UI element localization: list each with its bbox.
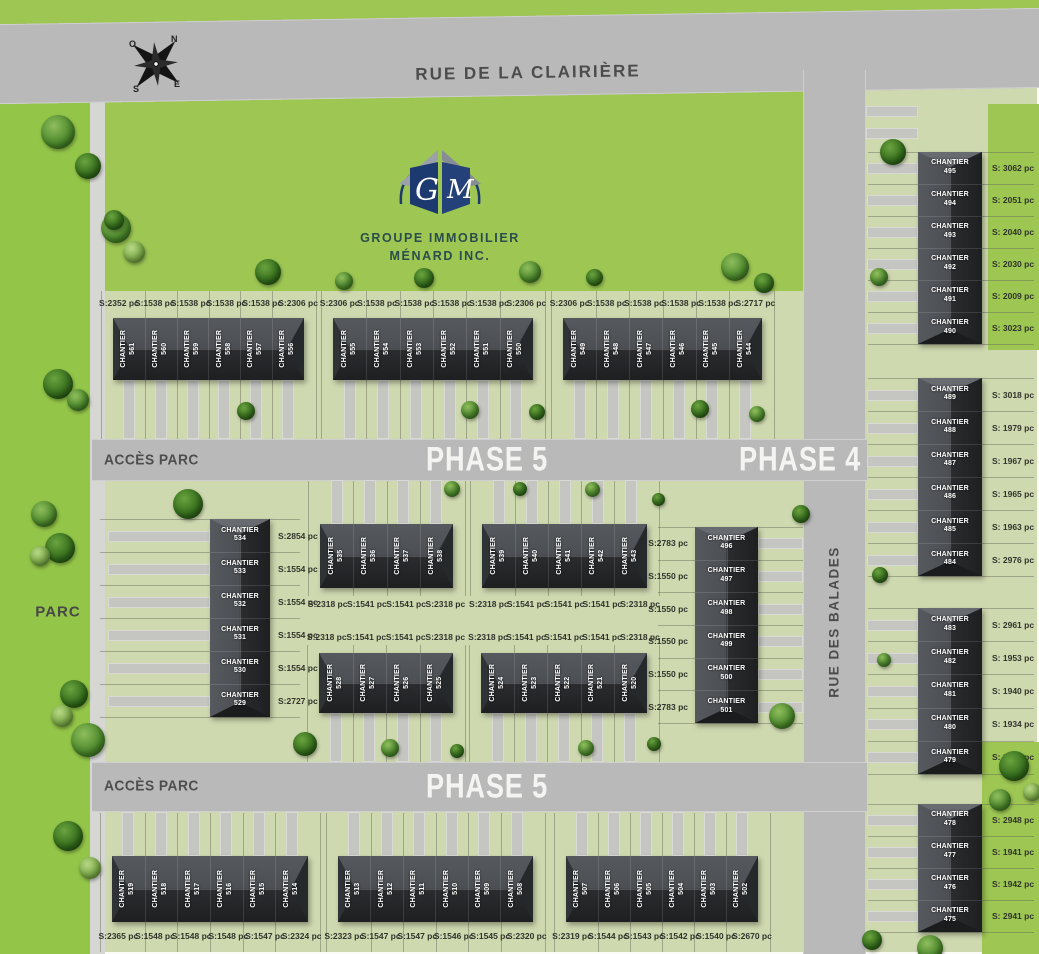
driveway (867, 423, 918, 434)
lot-line (868, 576, 1034, 577)
driveway (867, 291, 918, 302)
lot-label: CHANTIER511 (410, 870, 428, 908)
lot-544: CHANTIER544 (729, 318, 762, 380)
lot-area-label: S:1550 pc (648, 571, 688, 581)
lot-area-label: S:1543 pc (624, 931, 664, 941)
lot-label: CHANTIER549 (571, 330, 589, 368)
lot-label: CHANTIER497 (695, 567, 758, 585)
lot-area-label: S:1548 pc (172, 931, 212, 941)
lot-label: CHANTIER538 (428, 537, 446, 575)
park-label: PARC (35, 604, 80, 621)
lot-label: CHANTIER477 (918, 843, 982, 861)
driveway (510, 380, 522, 439)
lot-540: CHANTIER540 (515, 524, 549, 588)
lot-495: CHANTIER495 (918, 152, 982, 185)
driveway (413, 812, 425, 856)
lot-area-label: S:2318 pc (468, 632, 508, 642)
lot-area-label: S:2783 pc (648, 702, 688, 712)
lot-area-label: S: 3018 pc (992, 390, 1034, 400)
driveway (640, 380, 652, 439)
tree-icon (237, 402, 255, 420)
tree-icon (769, 703, 795, 729)
lot-526: CHANTIER526 (386, 653, 421, 713)
lot-line (465, 645, 466, 762)
driveway (331, 480, 343, 524)
lot-label: CHANTIER507 (573, 870, 591, 908)
driveway (108, 597, 210, 608)
lot-area-label: S:1548 pc (208, 931, 248, 941)
lot-area-label: S:2318 pc (307, 632, 347, 642)
tree-icon (381, 739, 399, 757)
lot-label: CHANTIER540 (523, 537, 541, 575)
driveway (282, 380, 294, 439)
lot-label: CHANTIER554 (374, 330, 392, 368)
lot-527: CHANTIER527 (353, 653, 388, 713)
lot-494: CHANTIER494 (918, 184, 982, 217)
lot-label: CHANTIER531 (210, 626, 270, 644)
lot-536: CHANTIER536 (353, 524, 387, 588)
driveway (381, 812, 393, 856)
lot-label: CHANTIER514 (283, 870, 301, 908)
driveway (364, 480, 376, 524)
lot-482: CHANTIER482 (918, 641, 982, 675)
lot-area-label: S:1541 pc (582, 632, 622, 642)
lot-area-label: S: 1979 pc (992, 423, 1034, 433)
driveway (758, 604, 803, 615)
lot-label: CHANTIER484 (918, 551, 982, 569)
lot-label: CHANTIER476 (918, 875, 982, 893)
lot-542: CHANTIER542 (581, 524, 615, 588)
lot-line (100, 651, 300, 652)
lot-area-label: S:1540 pc (696, 931, 736, 941)
lot-area-label: S:1550 pc (648, 669, 688, 679)
lot-label: CHANTIER517 (185, 870, 203, 908)
lot-area-label: S:1541 pc (347, 599, 387, 609)
lot-area-label: S: 2009 pc (992, 291, 1034, 301)
driveway (867, 456, 918, 467)
driveway (220, 812, 232, 856)
driveway (397, 480, 409, 524)
lot-553: CHANTIER553 (400, 318, 434, 380)
lot-area-label: S:1542 pc (660, 931, 700, 941)
lot-area-label: S: 2040 pc (992, 227, 1034, 237)
lot-528: CHANTIER528 (319, 653, 354, 713)
lot-label: CHANTIER527 (361, 664, 379, 702)
lot-560: CHANTIER560 (145, 318, 178, 380)
lot-area-label: S:1538 pc (587, 298, 627, 308)
driveway (736, 812, 748, 856)
tree-icon (585, 482, 600, 497)
lot-489: CHANTIER489 (918, 378, 982, 412)
tree-icon (71, 723, 105, 757)
tree-icon (586, 269, 603, 286)
lot-label: CHANTIER539 (490, 537, 508, 575)
driveway (108, 564, 210, 575)
lot-484: CHANTIER484 (918, 543, 982, 576)
lot-524: CHANTIER524 (481, 653, 515, 713)
lot-label: CHANTIER550 (508, 330, 526, 368)
phase5-label-top: PHASE 5 (426, 441, 548, 480)
driveway (444, 380, 456, 439)
lot-area-label: S:1538 pc (135, 298, 175, 308)
tree-icon (335, 272, 353, 290)
lot-516: CHANTIER516 (210, 856, 244, 922)
building-mid-lower-left: CHANTIER528CHANTIER527CHANTIER526CHANTIE… (319, 653, 453, 713)
lot-502: CHANTIER502 (726, 856, 758, 922)
lot-label: CHANTIER475 (918, 907, 982, 925)
lot-label: CHANTIER535 (328, 537, 346, 575)
lot-area-label: S:1538 pc (469, 298, 509, 308)
driveway (866, 106, 918, 117)
lot-517: CHANTIER517 (177, 856, 211, 922)
lot-label: CHANTIER542 (589, 537, 607, 575)
lot-area-label: S:2717 pc (736, 298, 776, 308)
lot-485: CHANTIER485 (918, 510, 982, 544)
lot-487: CHANTIER487 (918, 444, 982, 478)
lot-label: CHANTIER528 (327, 664, 345, 702)
lot-area-label: S: 1967 pc (992, 456, 1034, 466)
lot-551: CHANTIER551 (466, 318, 500, 380)
driveway (430, 713, 442, 762)
lot-550: CHANTIER550 (500, 318, 533, 380)
driveway (526, 480, 538, 524)
lot-line (469, 645, 470, 762)
lot-label: CHANTIER483 (918, 616, 982, 634)
lot-label: CHANTIER516 (218, 870, 236, 908)
lot-label: CHANTIER498 (695, 600, 758, 618)
lot-area-label: S:2352 pc (99, 298, 139, 308)
lot-523: CHANTIER523 (514, 653, 548, 713)
lot-area-label: S:1538 pc (242, 298, 282, 308)
lot-label: CHANTIER492 (918, 255, 982, 273)
lot-label: CHANTIER478 (918, 811, 982, 829)
building-north-2: CHANTIER555CHANTIER554CHANTIER553CHANTIE… (333, 318, 533, 380)
driveway (108, 630, 210, 641)
lot-label: CHANTIER518 (152, 870, 170, 908)
street-label-balades: RUE DES BALADES (827, 546, 842, 698)
driveway (187, 380, 199, 439)
lot-535: CHANTIER535 (320, 524, 354, 588)
lot-area-label: S:1538 pc (357, 298, 397, 308)
lot-547: CHANTIER547 (629, 318, 663, 380)
driveway (108, 663, 210, 674)
lot-label: CHANTIER533 (210, 560, 270, 578)
lot-area-label: S:2306 pc (278, 298, 318, 308)
driveway (867, 522, 918, 533)
lot-label: CHANTIER501 (695, 698, 758, 716)
acces-parc-label-top: ACCÈS PARC (104, 452, 199, 469)
company-logo: G M (397, 148, 483, 222)
lot-508: CHANTIER508 (501, 856, 533, 922)
lot-label: CHANTIER544 (737, 330, 755, 368)
driveway (286, 812, 298, 856)
driveway (640, 812, 652, 856)
lot-503: CHANTIER503 (694, 856, 727, 922)
lot-area-label: S:1550 pc (648, 636, 688, 646)
driveway (123, 380, 135, 439)
lot-label: CHANTIER558 (216, 330, 234, 368)
lot-area-label: S:1541 pc (386, 599, 426, 609)
lot-541: CHANTIER541 (548, 524, 582, 588)
lot-area-label: S:1548 pc (135, 931, 175, 941)
lot-area-label: S:1541 pc (582, 599, 622, 609)
tree-icon (647, 737, 661, 751)
lot-477: CHANTIER477 (918, 836, 982, 869)
lot-area-label: S:2306 pc (506, 298, 546, 308)
lot-area-label: S:1538 pc (624, 298, 664, 308)
lot-478: CHANTIER478 (918, 804, 982, 837)
driveway (591, 713, 603, 762)
tree-icon (529, 404, 545, 420)
tree-icon (79, 857, 101, 879)
lot-area-label: S:1541 pc (386, 632, 426, 642)
lot-area-label: S:1538 pc (171, 298, 211, 308)
tree-icon (513, 482, 527, 496)
lot-label: CHANTIER490 (918, 319, 982, 337)
lot-509: CHANTIER509 (468, 856, 501, 922)
driveway (558, 713, 570, 762)
compass-o: O (129, 39, 136, 49)
tree-icon (691, 400, 709, 418)
lot-line (101, 291, 102, 439)
tree-icon (578, 740, 594, 756)
tree-icon (53, 821, 83, 851)
lot-label: CHANTIER547 (637, 330, 655, 368)
logo-letter-g: G (415, 173, 439, 208)
tree-icon (754, 273, 774, 293)
lot-line (100, 552, 300, 553)
tree-icon (1023, 783, 1039, 801)
driveway (867, 653, 918, 664)
logo-letter-m: M (446, 175, 475, 205)
lot-label: CHANTIER482 (918, 649, 982, 667)
lot-label: CHANTIER519 (120, 870, 138, 908)
lot-label: CHANTIER488 (918, 419, 982, 437)
lot-531: CHANTIER531 (210, 618, 270, 652)
lot-label: CHANTIER489 (918, 386, 982, 404)
lot-522: CHANTIER522 (547, 653, 581, 713)
lot-label: CHANTIER555 (341, 330, 359, 368)
tree-icon (444, 481, 460, 497)
lot-label: CHANTIER487 (918, 452, 982, 470)
lot-label: CHANTIER526 (394, 664, 412, 702)
building-mid-upper-right: CHANTIER539CHANTIER540CHANTIER541CHANTIE… (482, 524, 647, 588)
lot-545: CHANTIER545 (696, 318, 730, 380)
lot-area-label: S: 2051 pc (992, 195, 1034, 205)
lot-label: CHANTIER524 (489, 664, 507, 702)
building-east-2: CHANTIER489CHANTIER488CHANTIER487CHANTIE… (918, 378, 982, 576)
driveway (758, 669, 803, 680)
lot-label: CHANTIER493 (918, 223, 982, 241)
lot-label: CHANTIER500 (695, 665, 758, 683)
lot-558: CHANTIER558 (209, 318, 242, 380)
lot-line (551, 291, 552, 439)
lot-label: CHANTIER520 (622, 664, 640, 702)
tree-icon (67, 389, 89, 411)
lot-532: CHANTIER532 (210, 585, 270, 619)
lot-490: CHANTIER490 (918, 312, 982, 344)
lot-530: CHANTIER530 (210, 651, 270, 685)
site-plan: N E S O G M GROUPE IMMOBILIER MÉNARD INC… (0, 0, 1039, 954)
compass-n: N (171, 34, 178, 44)
driveway (867, 847, 918, 858)
lot-label: CHANTIER560 (152, 330, 170, 368)
lot-label: CHANTIER552 (441, 330, 459, 368)
lot-559: CHANTIER559 (177, 318, 210, 380)
driveway (122, 812, 134, 856)
driveway (559, 480, 571, 524)
building-north-1: CHANTIER561CHANTIER560CHANTIER559CHANTIE… (113, 318, 304, 380)
tree-icon (41, 115, 75, 149)
lot-label: CHANTIER525 (428, 664, 446, 702)
lot-area-label: S:2318 pc (425, 632, 465, 642)
tree-icon (75, 153, 101, 179)
lot-area-label: S:2318 pc (469, 599, 509, 609)
tree-icon (293, 732, 317, 756)
tree-icon (60, 680, 88, 708)
lot-546: CHANTIER546 (663, 318, 697, 380)
lot-label: CHANTIER522 (555, 664, 573, 702)
lot-555: CHANTIER555 (333, 318, 367, 380)
lot-area-label: S: 3023 pc (992, 323, 1034, 333)
driveway (430, 480, 442, 524)
compass-e: E (174, 79, 180, 89)
lot-label: CHANTIER523 (522, 664, 540, 702)
lot-area-label: S:1550 pc (648, 604, 688, 614)
driveway (493, 480, 505, 524)
driveway (867, 719, 918, 730)
driveway (758, 636, 803, 647)
lot-label: CHANTIER551 (474, 330, 492, 368)
lot-label: CHANTIER504 (669, 870, 687, 908)
driveway (867, 686, 918, 697)
tree-icon (519, 261, 541, 283)
driveway (672, 812, 684, 856)
driveway (348, 812, 360, 856)
lot-499: CHANTIER499 (695, 625, 758, 659)
lot-label: CHANTIER521 (588, 664, 606, 702)
driveway (624, 713, 636, 762)
lot-line (100, 684, 300, 685)
lot-area-label: S: 2961 pc (992, 620, 1034, 630)
lot-539: CHANTIER539 (482, 524, 516, 588)
lot-label: CHANTIER556 (279, 330, 297, 368)
building-mid-lower-right: CHANTIER524CHANTIER523CHANTIER522CHANTIE… (481, 653, 647, 713)
tree-icon (255, 259, 281, 285)
tree-icon (917, 935, 943, 954)
lot-area-label: S: 1940 pc (992, 686, 1034, 696)
building-mid-upper-left: CHANTIER535CHANTIER536CHANTIER537CHANTIE… (320, 524, 453, 588)
lot-507: CHANTIER507 (566, 856, 599, 922)
driveway (344, 380, 356, 439)
lot-area-label: S:2320 pc (507, 931, 547, 941)
lot-492: CHANTIER492 (918, 248, 982, 281)
lot-line (545, 291, 546, 439)
lot-area-label: S:1541 pc (545, 599, 585, 609)
lot-549: CHANTIER549 (563, 318, 597, 380)
lot-label: CHANTIER505 (637, 870, 655, 908)
driveway (155, 380, 167, 439)
lot-label: CHANTIER512 (378, 870, 396, 908)
logo-name-line1: GROUPE IMMOBILIER (360, 231, 520, 245)
driveway (377, 380, 389, 439)
lot-area-label: S:1541 pc (506, 632, 546, 642)
lot-496: CHANTIER496 (695, 527, 758, 561)
lot-label: CHANTIER553 (408, 330, 426, 368)
lot-label: CHANTIER479 (918, 749, 982, 767)
driveway (397, 713, 409, 762)
driveway (608, 812, 620, 856)
tree-icon (414, 268, 434, 288)
lot-label: CHANTIER481 (918, 682, 982, 700)
lot-498: CHANTIER498 (695, 592, 758, 626)
tree-icon (721, 253, 749, 281)
road-rue-des-balades (803, 70, 866, 954)
driveway (625, 480, 637, 524)
lot-area-label: S:1538 pc (661, 298, 701, 308)
lot-area-label: S:2670 pc (732, 931, 772, 941)
driveway (511, 812, 523, 856)
lot-515: CHANTIER515 (243, 856, 277, 922)
building-north-3: CHANTIER549CHANTIER548CHANTIER547CHANTIE… (563, 318, 762, 380)
lot-518: CHANTIER518 (145, 856, 179, 922)
tree-icon (792, 505, 810, 523)
lot-area-label: S:2365 pc (98, 931, 138, 941)
building-east-4: CHANTIER478CHANTIER477CHANTIER476CHANTIE… (918, 804, 982, 932)
lot-label: CHANTIER491 (918, 287, 982, 305)
lot-area-label: S:2319 pc (552, 931, 592, 941)
lot-label: CHANTIER485 (918, 518, 982, 536)
lot-label: CHANTIER548 (604, 330, 622, 368)
building-east-1: CHANTIER495CHANTIER494CHANTIER493CHANTIE… (918, 152, 982, 344)
lot-561: CHANTIER561 (113, 318, 146, 380)
lot-line (316, 291, 317, 439)
lot-514: CHANTIER514 (275, 856, 308, 922)
lot-label: CHANTIER509 (475, 870, 493, 908)
lot-area-label: S:1541 pc (346, 632, 386, 642)
tree-icon (31, 501, 57, 527)
lot-556: CHANTIER556 (272, 318, 304, 380)
tree-icon (999, 751, 1029, 781)
tree-icon (862, 930, 882, 950)
lot-506: CHANTIER506 (598, 856, 631, 922)
lot-label: CHANTIER494 (918, 191, 982, 209)
driveway (867, 390, 918, 401)
lot-label: CHANTIER536 (361, 537, 379, 575)
lot-481: CHANTIER481 (918, 674, 982, 708)
lot-line (868, 344, 1034, 345)
lot-537: CHANTIER537 (387, 524, 421, 588)
lot-line (100, 618, 300, 619)
lot-label: CHANTIER557 (247, 330, 265, 368)
lot-line (321, 291, 322, 439)
lot-area-label: S:1545 pc (470, 931, 510, 941)
driveway (478, 812, 490, 856)
lot-529: CHANTIER529 (210, 684, 270, 717)
lot-area-label: S:1544 pc (588, 931, 628, 941)
lot-483: CHANTIER483 (918, 608, 982, 642)
lot-area-label: S:1546 pc (434, 931, 474, 941)
building-south-2: CHANTIER513CHANTIER512CHANTIER511CHANTIE… (338, 856, 533, 922)
lot-label: CHANTIER534 (210, 527, 270, 545)
lot-area-label: S: 1965 pc (992, 489, 1034, 499)
lot-area-label: S: 1953 pc (992, 653, 1034, 663)
lot-label: CHANTIER506 (605, 870, 623, 908)
lot-label: CHANTIER503 (701, 870, 719, 908)
tree-icon (123, 241, 145, 263)
lot-493: CHANTIER493 (918, 216, 982, 249)
driveway (867, 879, 918, 890)
